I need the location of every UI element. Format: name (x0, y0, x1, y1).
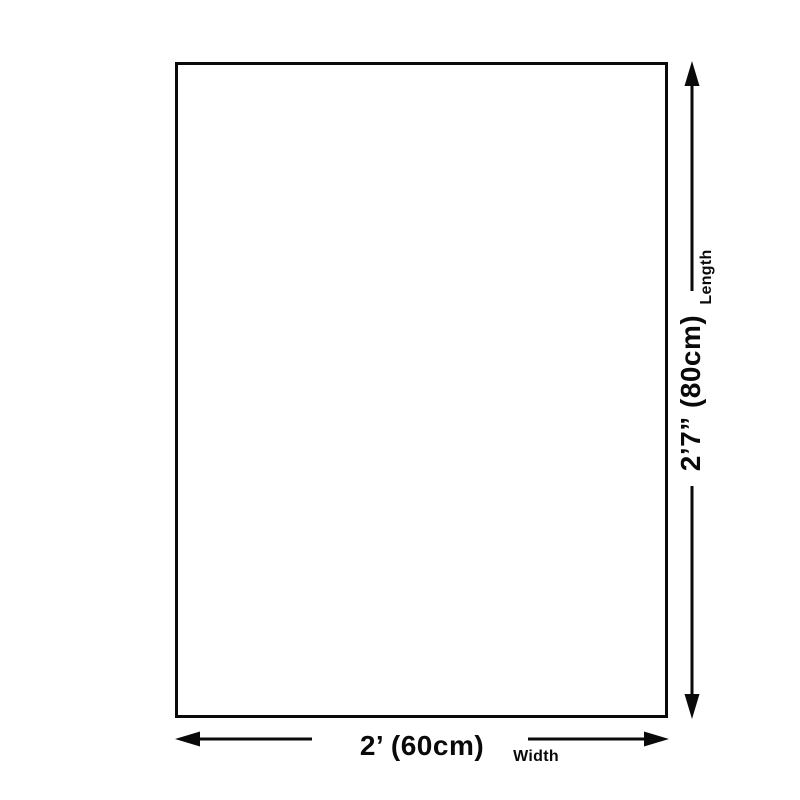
width-dimension-label: Width (513, 749, 559, 765)
length-dimension-label: Length (699, 249, 715, 304)
arrow-right-head-icon (644, 732, 669, 747)
arrow-down-head-icon (685, 694, 700, 719)
arrow-up-head-icon (685, 61, 700, 86)
product-outline-rectangle (175, 62, 668, 718)
arrow-left-head-icon (175, 732, 200, 747)
length-dimension-value: 2’7” (80cm) (677, 315, 705, 471)
width-dimension-value: 2’ (60cm) (360, 732, 484, 760)
dimension-diagram: 2’ (60cm) Width 2’7” (80cm) Length (0, 0, 800, 800)
